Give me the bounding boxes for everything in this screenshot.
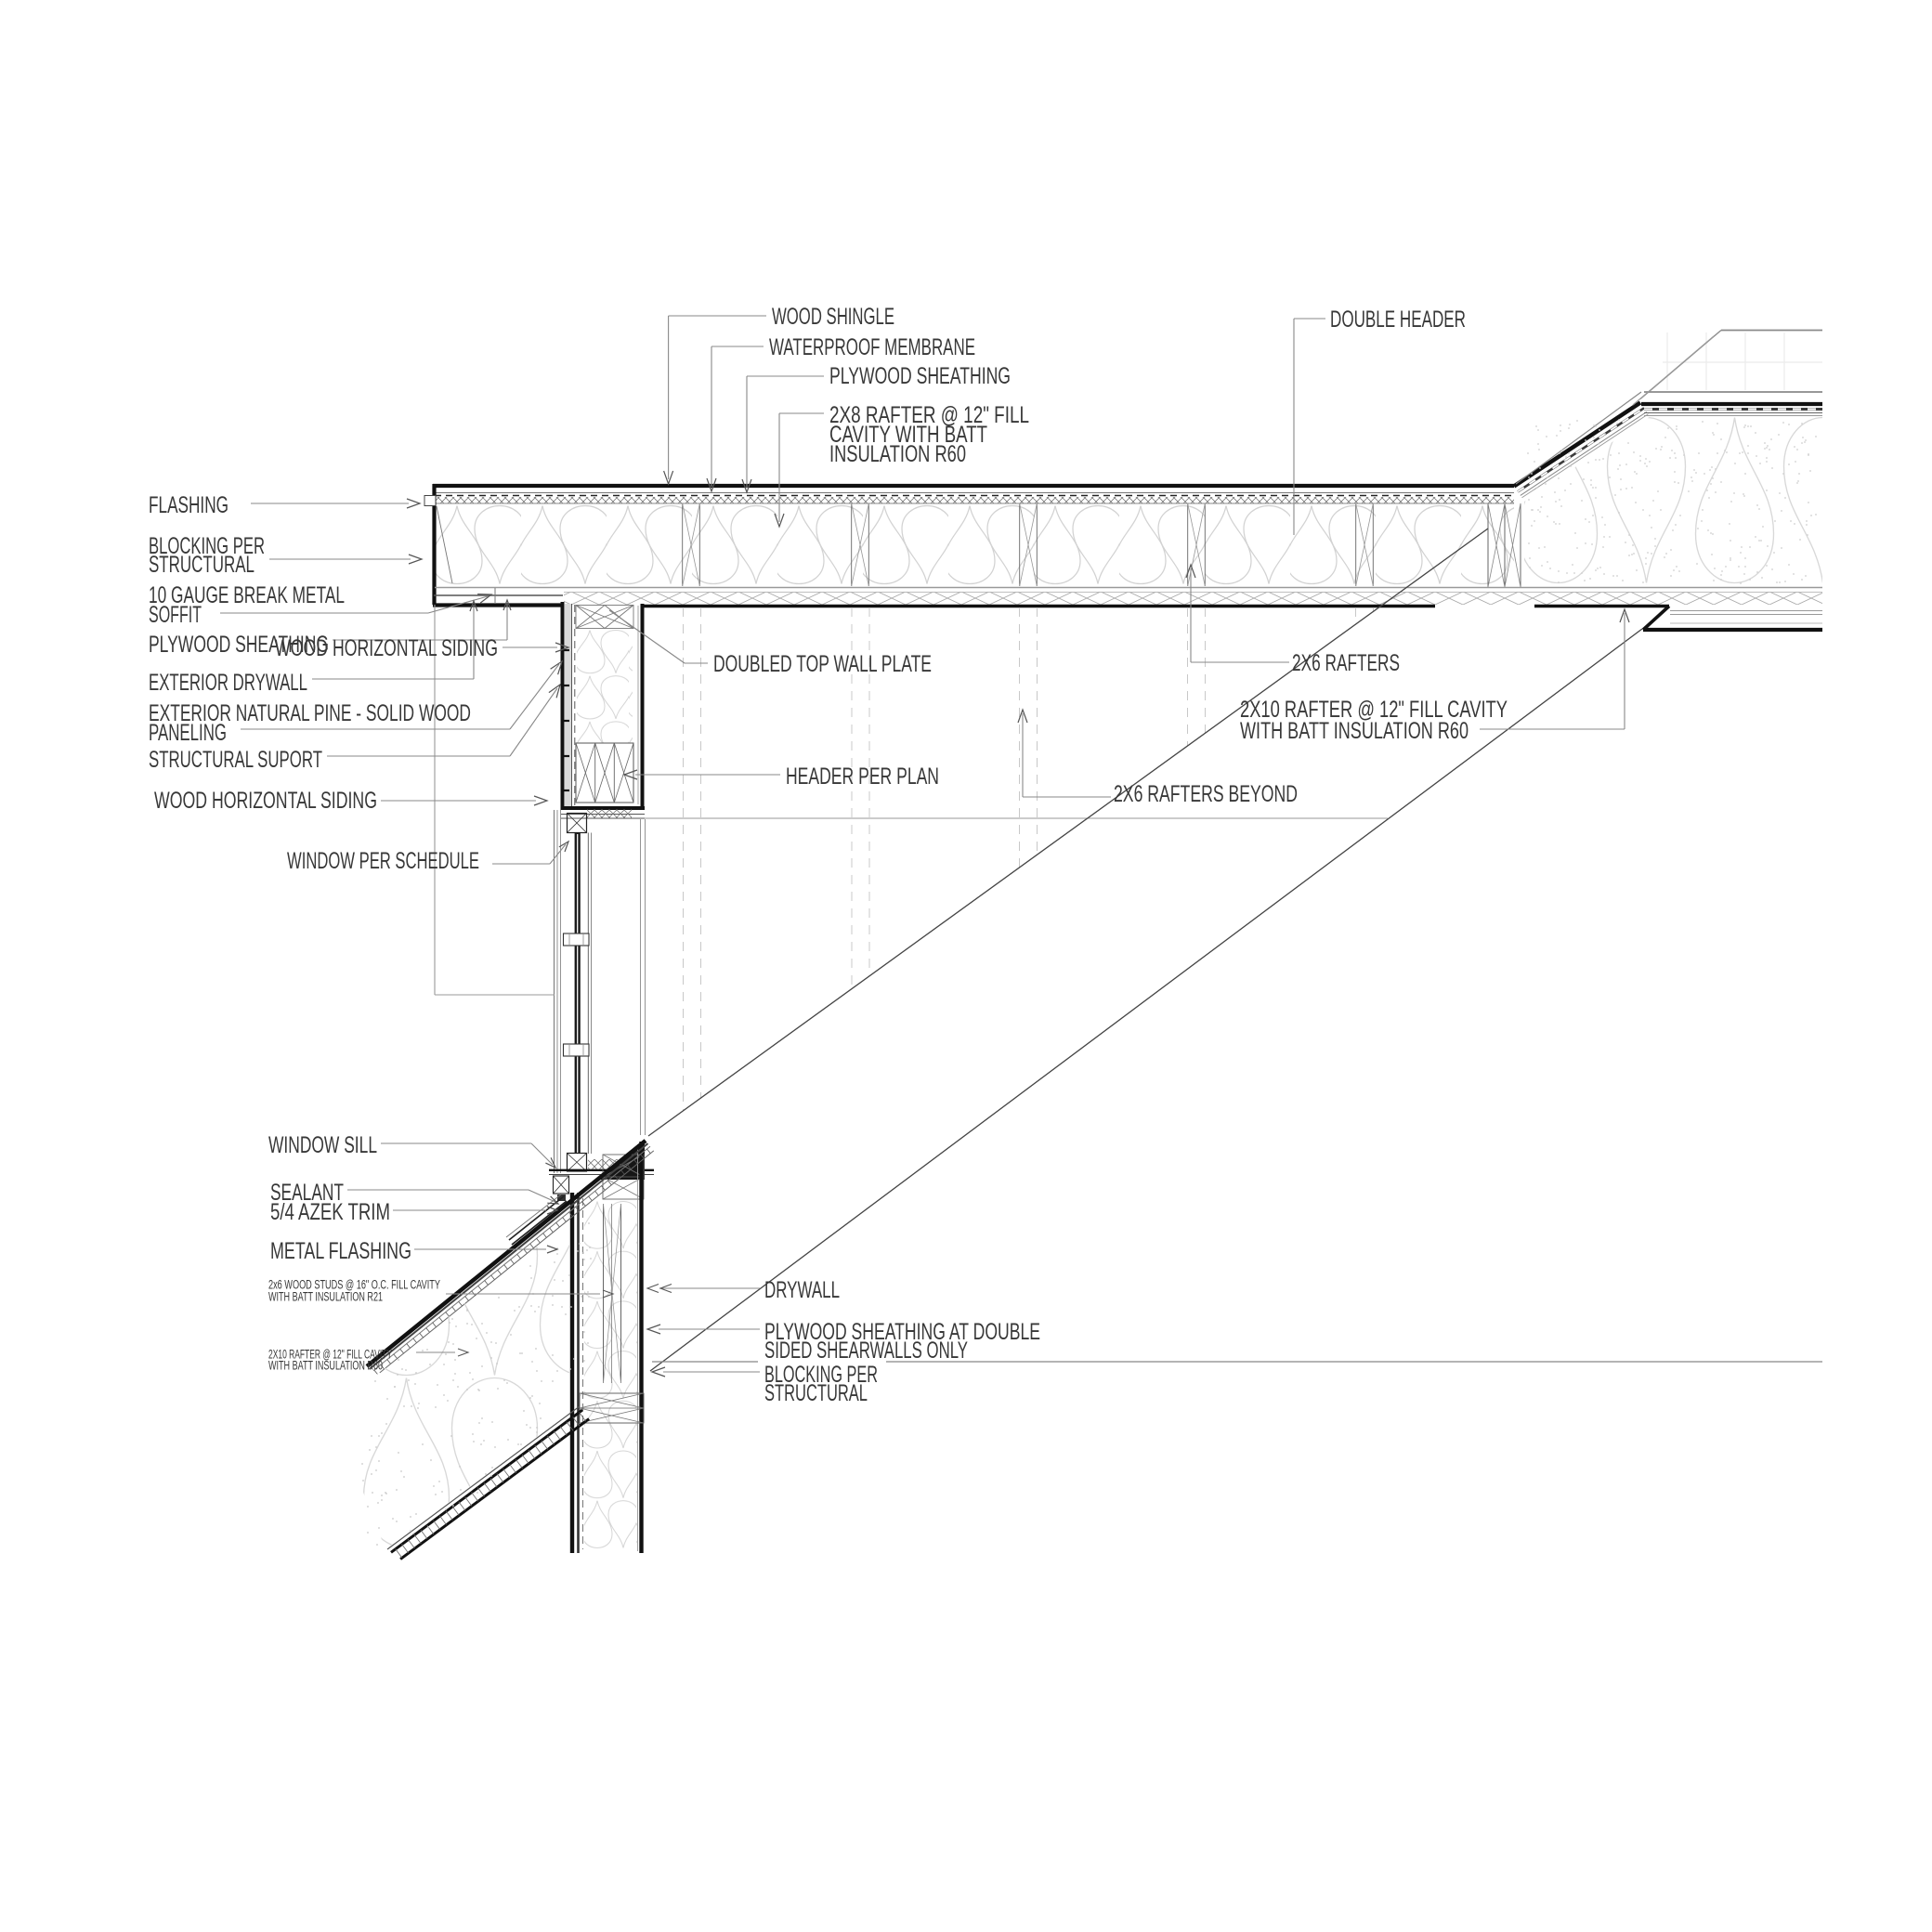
svg-text:WOOD HORIZONTAL SIDING: WOOD HORIZONTAL SIDING: [154, 788, 377, 814]
svg-text:PLYWOOD SHEATHING: PLYWOOD SHEATHING: [829, 363, 1011, 389]
svg-text:2X6 RAFTERS BEYOND: 2X6 RAFTERS BEYOND: [1114, 781, 1298, 807]
svg-text:STRUCTURAL: STRUCTURAL: [149, 552, 255, 578]
svg-text:STRUCTURAL SUPORT: STRUCTURAL SUPORT: [149, 747, 322, 773]
svg-text:DOUBLE HEADER: DOUBLE HEADER: [1330, 307, 1466, 333]
svg-text:2X6 RAFTERS: 2X6 RAFTERS: [1292, 650, 1400, 676]
svg-text:DRYWALL: DRYWALL: [764, 1277, 840, 1303]
svg-text:SIDED SHEARWALLS ONLY: SIDED SHEARWALLS ONLY: [764, 1338, 968, 1364]
svg-text:WITH BATT INSULATION R60: WITH BATT INSULATION R60: [1240, 718, 1469, 744]
svg-text:5/4 AZEK TRIM: 5/4 AZEK TRIM: [270, 1199, 390, 1225]
svg-text:HEADER PER PLAN: HEADER PER PLAN: [786, 764, 939, 790]
svg-text:WOOD SHINGLE: WOOD SHINGLE: [772, 304, 894, 330]
svg-text:FLASHING: FLASHING: [149, 492, 228, 518]
svg-text:WINDOW SILL: WINDOW SILL: [268, 1132, 377, 1158]
svg-text:WOOD HORIZONTAL SIDING: WOOD HORIZONTAL SIDING: [275, 635, 498, 661]
svg-text:WATERPROOF MEMBRANE: WATERPROOF MEMBRANE: [769, 334, 975, 360]
svg-text:WITH BATT INSULATION R21: WITH BATT INSULATION R21: [268, 1290, 383, 1304]
svg-text:SOFFIT: SOFFIT: [149, 602, 202, 628]
svg-text:PANELING: PANELING: [149, 720, 227, 746]
svg-text:EXTERIOR DRYWALL: EXTERIOR DRYWALL: [149, 670, 307, 696]
svg-text:STRUCTURAL: STRUCTURAL: [764, 1380, 868, 1406]
svg-text:METAL FLASHING: METAL FLASHING: [270, 1238, 411, 1264]
svg-text:INSULATION R60: INSULATION R60: [829, 441, 966, 467]
svg-text:DOUBLED TOP WALL PLATE: DOUBLED TOP WALL PLATE: [713, 651, 932, 677]
svg-text:WITH BATT INSULATION R60: WITH BATT INSULATION R60: [268, 1359, 383, 1373]
svg-text:WINDOW PER SCHEDULE: WINDOW PER SCHEDULE: [287, 848, 479, 874]
